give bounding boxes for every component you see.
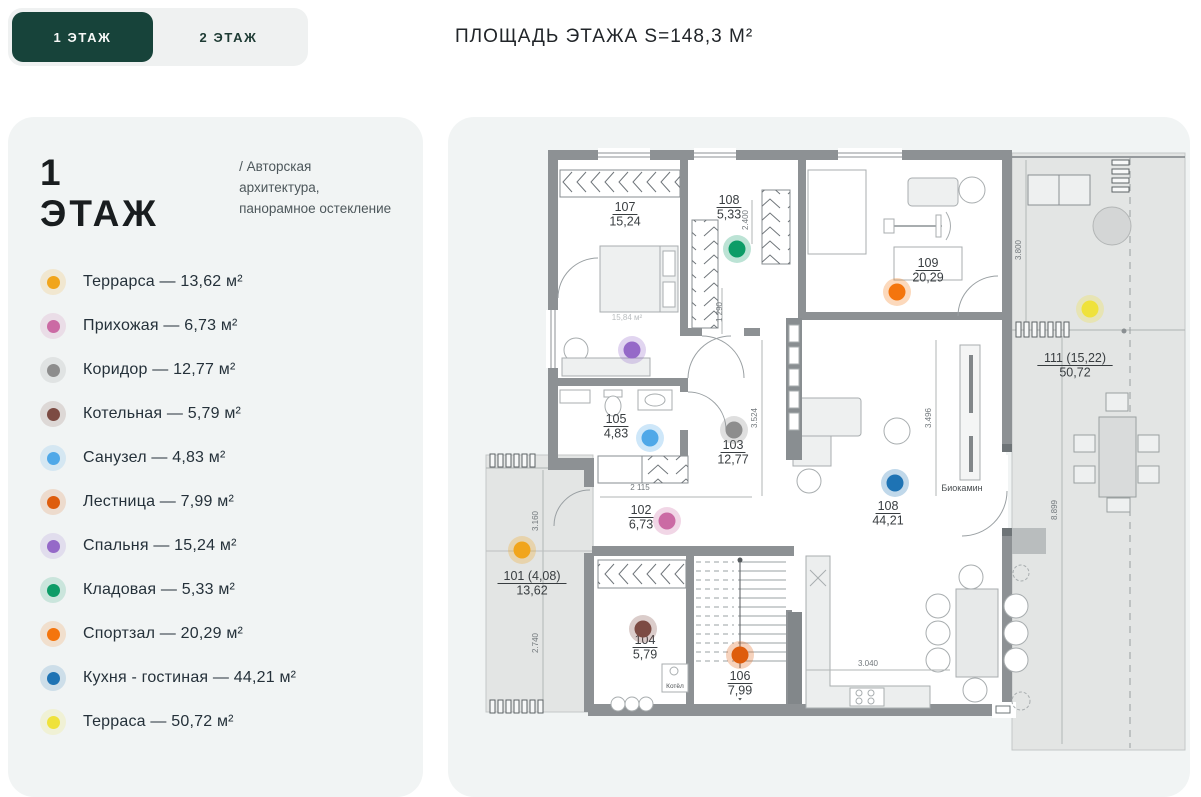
- svg-text:106: 106: [730, 669, 751, 683]
- svg-text:50,72: 50,72: [1059, 366, 1090, 380]
- legend-item-kitchen-living[interactable]: Кухня - гостиная — 44,21 м²: [40, 656, 395, 700]
- floor-plan-card: 10715,241085,3310920,29111 (15,22)50,721…: [448, 117, 1190, 797]
- panel-title: 1 ЭТАЖ: [40, 153, 195, 234]
- annotation-15-84-: 15,84 м²: [612, 313, 643, 322]
- plan-dot-gym[interactable]: [883, 278, 911, 306]
- tab-floor-1[interactable]: 1 ЭТАЖ: [12, 12, 153, 62]
- legend-dot-stairs: [40, 489, 66, 515]
- legend-panel: 1 ЭТАЖ / Авторская архитектура, панорамн…: [8, 117, 423, 797]
- plan-dot-terrace-small[interactable]: [508, 536, 536, 564]
- svg-text:4,83: 4,83: [604, 427, 628, 441]
- plan-dot-corridor[interactable]: [720, 416, 748, 444]
- legend-item-terrace-small[interactable]: Террарса — 13,62 м²: [40, 260, 395, 304]
- svg-text:102: 102: [631, 503, 652, 517]
- content: 1 ЭТАЖ / Авторская архитектура, панорамн…: [8, 117, 1190, 797]
- legend-item-storage[interactable]: Кладовая — 5,33 м²: [40, 568, 395, 612]
- dimension-8-899: 8.899: [1050, 499, 1059, 520]
- plan-dot-stairs[interactable]: [726, 641, 754, 669]
- legend-dot-corridor: [40, 357, 66, 383]
- dimension-2-400: 2.400: [741, 209, 750, 230]
- dimension-2-115: 2 115: [630, 483, 650, 492]
- svg-text:5,79: 5,79: [633, 648, 657, 662]
- dimension-3-160: 3.160: [531, 510, 540, 531]
- svg-text:20,29: 20,29: [912, 271, 943, 285]
- legend-label: Санузел — 4,83 м²: [83, 449, 226, 467]
- legend-label: Спортзал — 20,29 м²: [83, 625, 243, 643]
- legend-dot-storage: [40, 577, 66, 603]
- svg-text:108: 108: [719, 193, 740, 207]
- plan-dot-storage[interactable]: [723, 235, 751, 263]
- plan-dot-boiler-room[interactable]: [629, 615, 657, 643]
- svg-text:13,62: 13,62: [516, 584, 547, 598]
- terrace-large-area: [1012, 153, 1185, 750]
- legend-label: Кладовая — 5,33 м²: [83, 581, 235, 599]
- dimension-3-800: 3.800: [1014, 239, 1023, 260]
- svg-text:105: 105: [606, 412, 627, 426]
- plan-dot-kitchen-living[interactable]: [881, 469, 909, 497]
- legend-dot-gym: [40, 621, 66, 647]
- dimension-2-740: 2.740: [531, 632, 540, 653]
- legend-dot-hallway: [40, 313, 66, 339]
- svg-text:111 (15,22): 111 (15,22): [1044, 351, 1106, 365]
- legend-dot-bathroom: [40, 445, 66, 471]
- svg-text:6,73: 6,73: [629, 518, 653, 532]
- legend-dot-boiler-room: [40, 401, 66, 427]
- page: 1 ЭТАЖ 2 ЭТАЖ ПЛОЩАДЬ ЭТАЖА S=148,3 М² 1…: [0, 0, 1201, 754]
- plan-dot-hallway[interactable]: [653, 507, 681, 535]
- legend-item-bedroom[interactable]: Спальня — 15,24 м²: [40, 524, 395, 568]
- dimension-3-040: 3.040: [858, 659, 879, 668]
- legend-item-terrace-large[interactable]: Терраса — 50,72 м²: [40, 700, 395, 744]
- legend-dot-bedroom: [40, 533, 66, 559]
- tab-floor-2[interactable]: 2 ЭТАЖ: [153, 12, 304, 62]
- legend-dot-kitchen-living: [40, 665, 66, 691]
- legend-list: Террарса — 13,62 м²Прихожая — 6,73 м²Кор…: [40, 260, 395, 744]
- plan-dot-bathroom[interactable]: [636, 424, 664, 452]
- legend-label: Кухня - гостиная — 44,21 м²: [83, 669, 296, 687]
- svg-text:5,33: 5,33: [717, 208, 741, 222]
- legend-label: Прихожая — 6,73 м²: [83, 317, 238, 335]
- svg-text:108: 108: [878, 499, 899, 513]
- room-label-106: 1067,99: [728, 669, 753, 698]
- legend-item-corridor[interactable]: Коридор — 12,77 м²: [40, 348, 395, 392]
- svg-text:15,24: 15,24: [609, 215, 640, 229]
- legend-item-boiler-room[interactable]: Котельная — 5,79 м²: [40, 392, 395, 436]
- room-label-108: 1085,33: [717, 193, 742, 222]
- legend-label: Котельная — 5,79 м²: [83, 405, 241, 423]
- legend-item-hallway[interactable]: Прихожая — 6,73 м²: [40, 304, 395, 348]
- panel-subtitle-line1: / Авторская архитектура,: [239, 159, 319, 195]
- legend-label: Террарса — 13,62 м²: [83, 273, 243, 291]
- legend-dot-terrace-small: [40, 269, 66, 295]
- room-label-102: 1026,73: [629, 503, 654, 532]
- plan-dot-bedroom[interactable]: [618, 336, 646, 364]
- dimension-3-524: 3.524: [750, 407, 759, 428]
- legend-item-gym[interactable]: Спортзал — 20,29 м²: [40, 612, 395, 656]
- svg-text:44,21: 44,21: [872, 514, 903, 528]
- svg-text:109: 109: [918, 256, 939, 270]
- legend-label: Лестница — 7,99 м²: [83, 493, 234, 511]
- legend-dot-terrace-large: [40, 709, 66, 735]
- panel-subtitle-line2: панорамное остекление: [239, 201, 391, 216]
- svg-text:107: 107: [615, 200, 636, 214]
- plan-dot-terrace-large[interactable]: [1076, 295, 1104, 323]
- topbar: 1 ЭТАЖ 2 ЭТАЖ ПЛОЩАДЬ ЭТАЖА S=148,3 М²: [8, 8, 1190, 66]
- svg-text:12,77: 12,77: [717, 453, 748, 467]
- floor-plan-drawing: 10715,241085,3310920,29111 (15,22)50,721…: [448, 117, 1190, 754]
- legend-label: Коридор — 12,77 м²: [83, 361, 236, 379]
- svg-text:7,99: 7,99: [728, 684, 752, 698]
- legend-label: Терраса — 50,72 м²: [83, 713, 234, 731]
- panel-head: 1 ЭТАЖ / Авторская архитектура, панорамн…: [40, 153, 395, 234]
- room-label-105: 1054,83: [604, 412, 629, 441]
- floor-tabs: 1 ЭТАЖ 2 ЭТАЖ: [8, 8, 308, 66]
- dimension-3-496: 3.496: [924, 407, 933, 428]
- annotation--: Котёл: [666, 683, 684, 690]
- legend-item-stairs[interactable]: Лестница — 7,99 м²: [40, 480, 395, 524]
- dimension-1-290: 1 290: [715, 301, 724, 322]
- floor-area-title: ПЛОЩАДЬ ЭТАЖА S=148,3 М²: [455, 26, 753, 48]
- panel-subtitle: / Авторская архитектура, панорамное осте…: [239, 153, 395, 220]
- annotation--: Биокамин: [941, 483, 982, 493]
- legend-item-bathroom[interactable]: Санузел — 4,83 м²: [40, 436, 395, 480]
- svg-text:101 (4,08): 101 (4,08): [504, 569, 561, 583]
- legend-label: Спальня — 15,24 м²: [83, 537, 237, 555]
